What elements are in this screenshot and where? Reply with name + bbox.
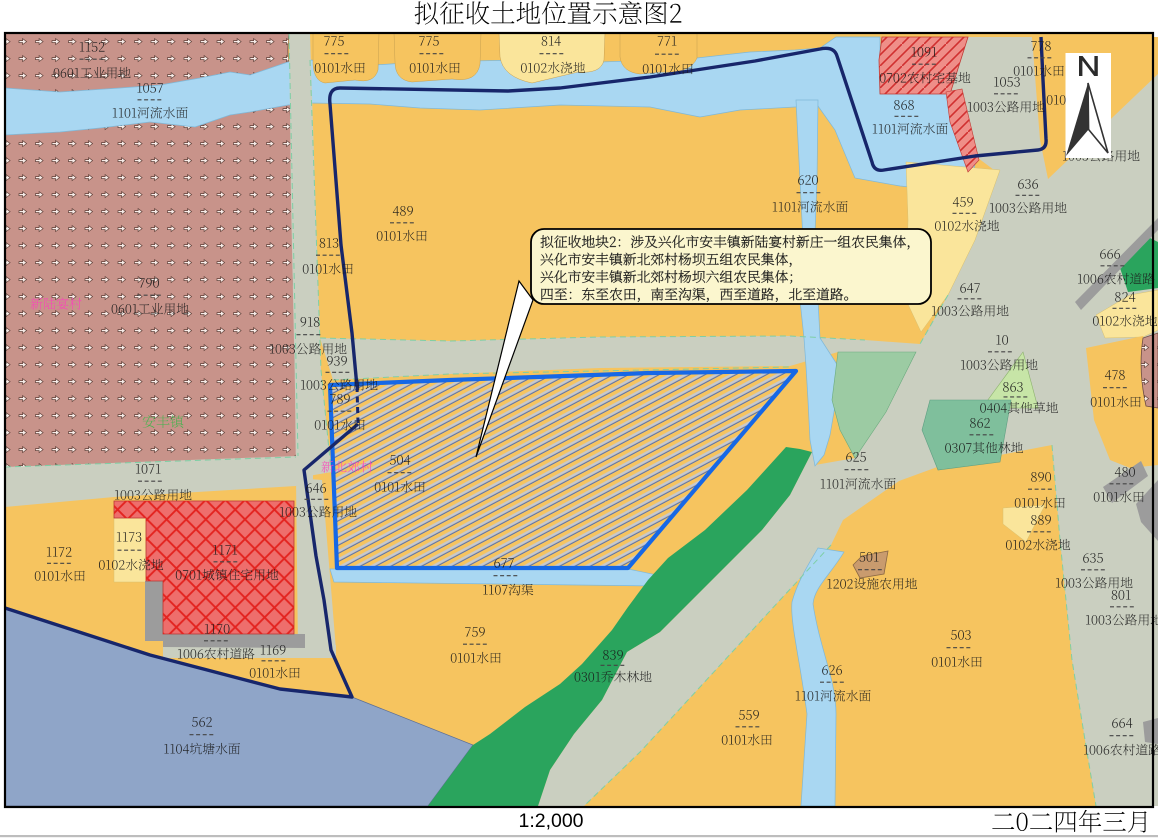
svg-text:1:2,000: 1:2,000	[518, 810, 583, 832]
